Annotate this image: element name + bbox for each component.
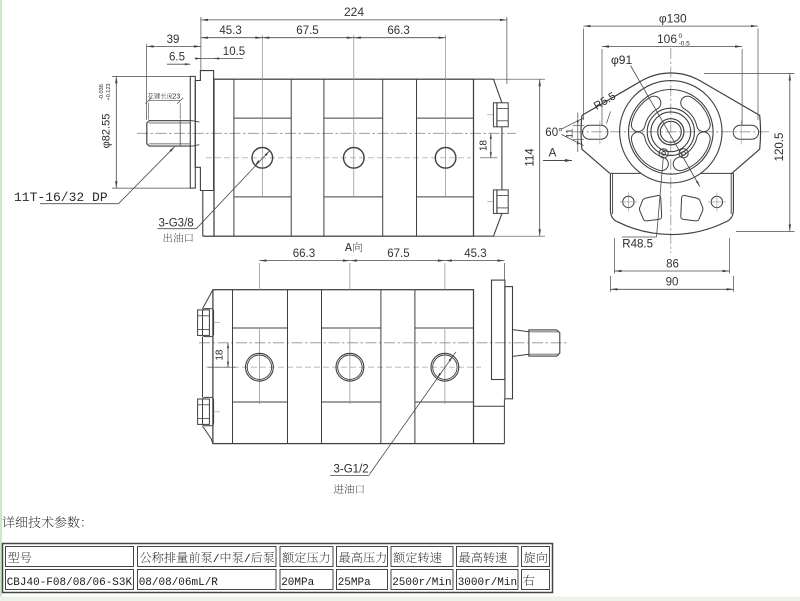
svg-text:6.5: 6.5 — [169, 52, 185, 64]
svg-text:67.5: 67.5 — [296, 25, 318, 37]
svg-text:10.5: 10.5 — [223, 46, 245, 58]
svg-text:/: / — [244, 554, 251, 566]
svg-text:φ91: φ91 — [611, 53, 632, 67]
svg-text:A: A — [549, 148, 557, 160]
svg-text:39: 39 — [167, 34, 180, 46]
svg-text:106: 106 — [657, 32, 677, 46]
svg-text:08/08/06mL/R: 08/08/06mL/R — [139, 577, 219, 589]
svg-text:45.3: 45.3 — [464, 248, 486, 260]
svg-text:-0.036: -0.036 — [99, 84, 105, 100]
svg-text:2500r/Min: 2500r/Min — [392, 577, 451, 589]
svg-text:0: 0 — [679, 33, 683, 40]
svg-text:R48.5: R48.5 — [622, 239, 653, 251]
svg-text:60°: 60° — [545, 127, 562, 139]
svg-text:45.3: 45.3 — [219, 25, 241, 37]
svg-text:67.5: 67.5 — [387, 248, 409, 260]
svg-text:25MPa: 25MPa — [338, 577, 371, 589]
svg-text:-0.5: -0.5 — [679, 41, 691, 48]
svg-text:3-G3/8: 3-G3/8 — [159, 218, 194, 230]
svg-text:224: 224 — [344, 5, 364, 19]
svg-text:11T-16/32 DP: 11T-16/32 DP — [14, 190, 108, 205]
svg-text:114: 114 — [525, 148, 537, 167]
svg-text:/: / — [213, 554, 220, 566]
svg-text:φ82.55: φ82.55 — [101, 114, 113, 149]
svg-text:20MPa: 20MPa — [281, 577, 314, 589]
svg-text:3000r/Min: 3000r/Min — [458, 577, 517, 589]
svg-text:A: A — [345, 242, 352, 255]
svg-text:φ130: φ130 — [659, 11, 687, 25]
svg-text:3-G1/2: 3-G1/2 — [334, 464, 369, 476]
svg-text:66.3: 66.3 — [387, 25, 409, 37]
svg-text:18: 18 — [215, 349, 226, 361]
svg-text:+0.123: +0.123 — [106, 84, 112, 101]
svg-text:120.5: 120.5 — [774, 133, 786, 162]
svg-text:23: 23 — [173, 93, 181, 100]
svg-text:86: 86 — [666, 258, 679, 270]
svg-text:CBJ40-F08/08/06-S3K: CBJ40-F08/08/06-S3K — [7, 577, 133, 589]
svg-text:90: 90 — [666, 277, 679, 289]
svg-text:18: 18 — [478, 140, 489, 152]
svg-text:66.3: 66.3 — [293, 248, 315, 260]
